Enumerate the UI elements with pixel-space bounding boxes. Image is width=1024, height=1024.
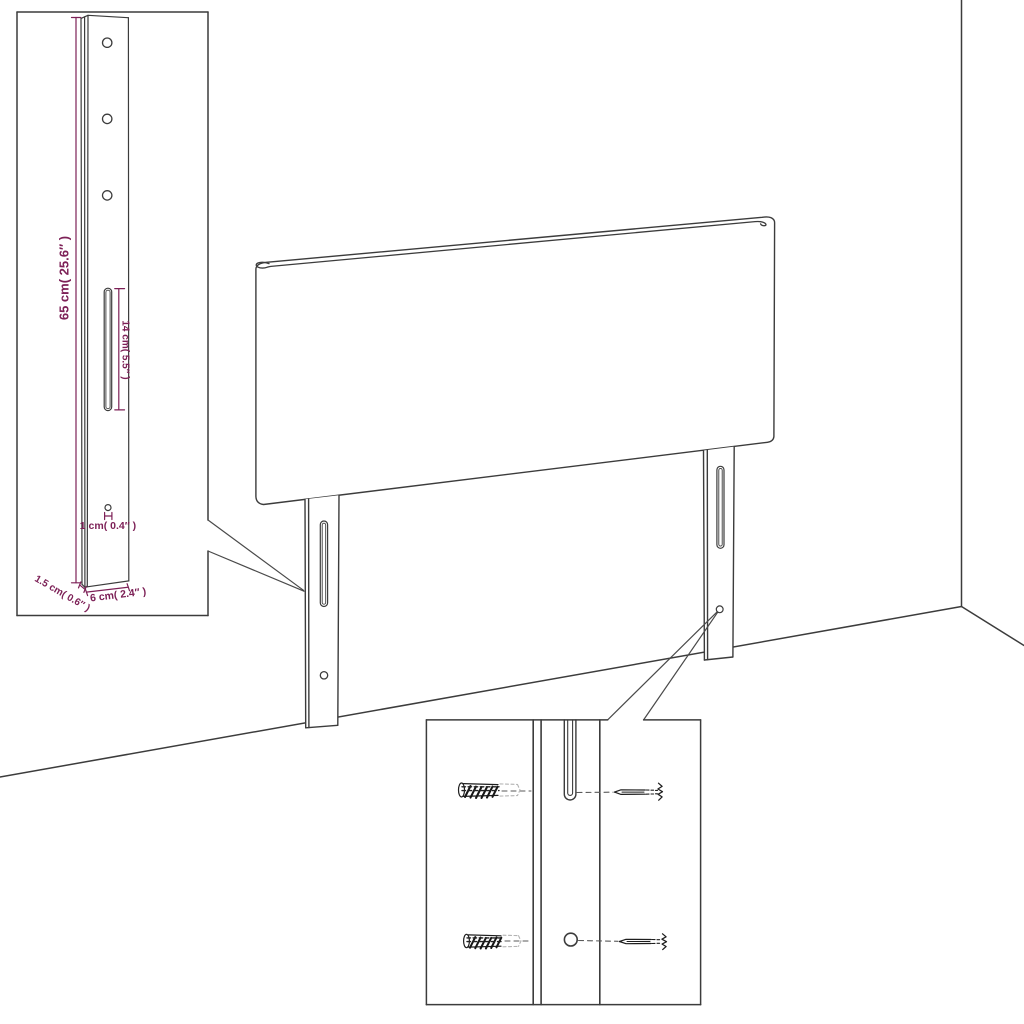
svg-text:1 cm( 0.4″ ): 1 cm( 0.4″ ) [80,520,136,532]
svg-text:6 cm( 2.4″ ): 6 cm( 2.4″ ) [89,586,146,605]
svg-text:1.5 cm( 0.6″ ): 1.5 cm( 0.6″ ) [33,574,92,615]
svg-text:65 cm( 25.6″ ): 65 cm( 25.6″ ) [57,236,72,320]
svg-text:14 cm( 5.5″ ): 14 cm( 5.5″ ) [120,320,131,379]
